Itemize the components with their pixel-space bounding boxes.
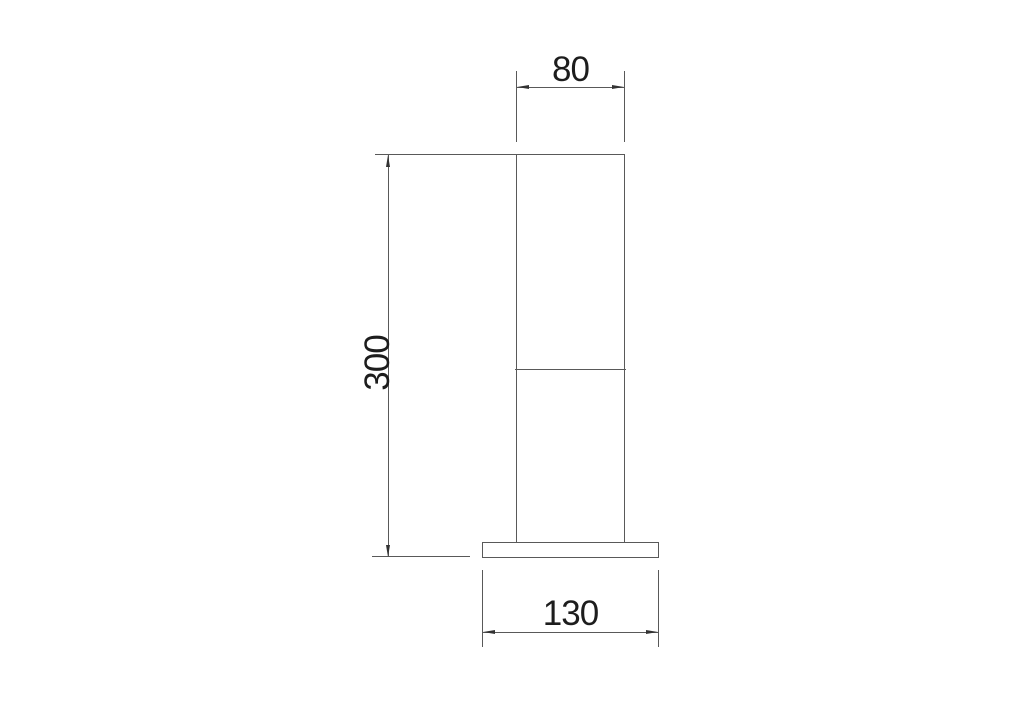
dim-left-arrowhead-top-icon <box>386 155 390 167</box>
dim-left-value-label: 300 <box>360 325 396 401</box>
post-left-edge <box>516 154 517 542</box>
dimension-drawing-canvas: 80 300 130 <box>0 0 1024 723</box>
base-plate-outline <box>482 542 659 558</box>
dim-left-arrowhead-bottom-icon <box>386 545 390 557</box>
dim-top-extension-line-right <box>624 71 625 142</box>
post-top-edge-and-top-extension-line <box>375 154 625 155</box>
post-section-divider-line <box>515 369 626 370</box>
dim-bottom-value-label: 130 <box>483 596 658 632</box>
dim-top-value-label: 80 <box>517 52 624 88</box>
dim-bottom-extension-line-right <box>658 570 659 647</box>
post-right-edge <box>624 154 625 542</box>
